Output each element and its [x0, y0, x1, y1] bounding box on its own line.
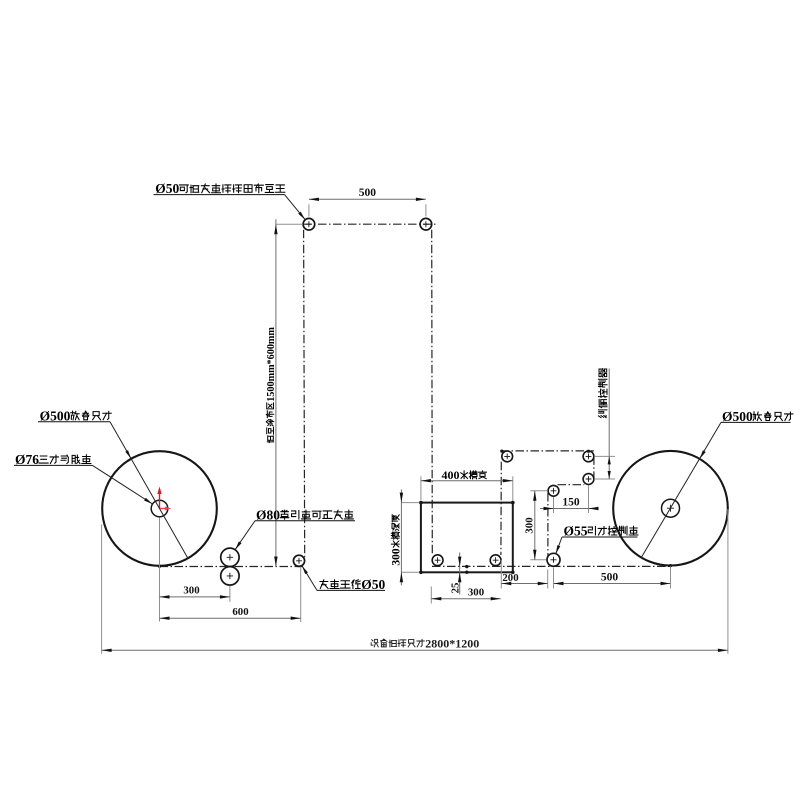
svg-text:1500mm*600mm: 1500mm*600mm — [266, 327, 277, 402]
svg-text:Ø500: Ø500 — [722, 409, 753, 424]
svg-text:200: 200 — [502, 572, 518, 584]
svg-text:2800*1200: 2800*1200 — [425, 636, 479, 650]
svg-text:600: 600 — [232, 606, 248, 618]
svg-text:150: 150 — [562, 496, 580, 508]
svg-text:Ø55: Ø55 — [564, 524, 588, 539]
svg-text:Ø500: Ø500 — [40, 408, 71, 423]
svg-text:300: 300 — [524, 517, 536, 533]
svg-text:Ø50: Ø50 — [361, 577, 385, 592]
svg-text:500: 500 — [359, 187, 377, 199]
svg-text:Ø50: Ø50 — [155, 181, 179, 196]
svg-text:Ø80: Ø80 — [256, 507, 280, 522]
svg-text:500: 500 — [601, 571, 619, 583]
svg-text:300: 300 — [183, 585, 199, 597]
svg-text:Ø76: Ø76 — [15, 452, 39, 467]
svg-text:300: 300 — [391, 548, 403, 566]
svg-text:300: 300 — [468, 586, 484, 598]
svg-text:400: 400 — [442, 468, 460, 482]
svg-text:25: 25 — [450, 583, 462, 594]
